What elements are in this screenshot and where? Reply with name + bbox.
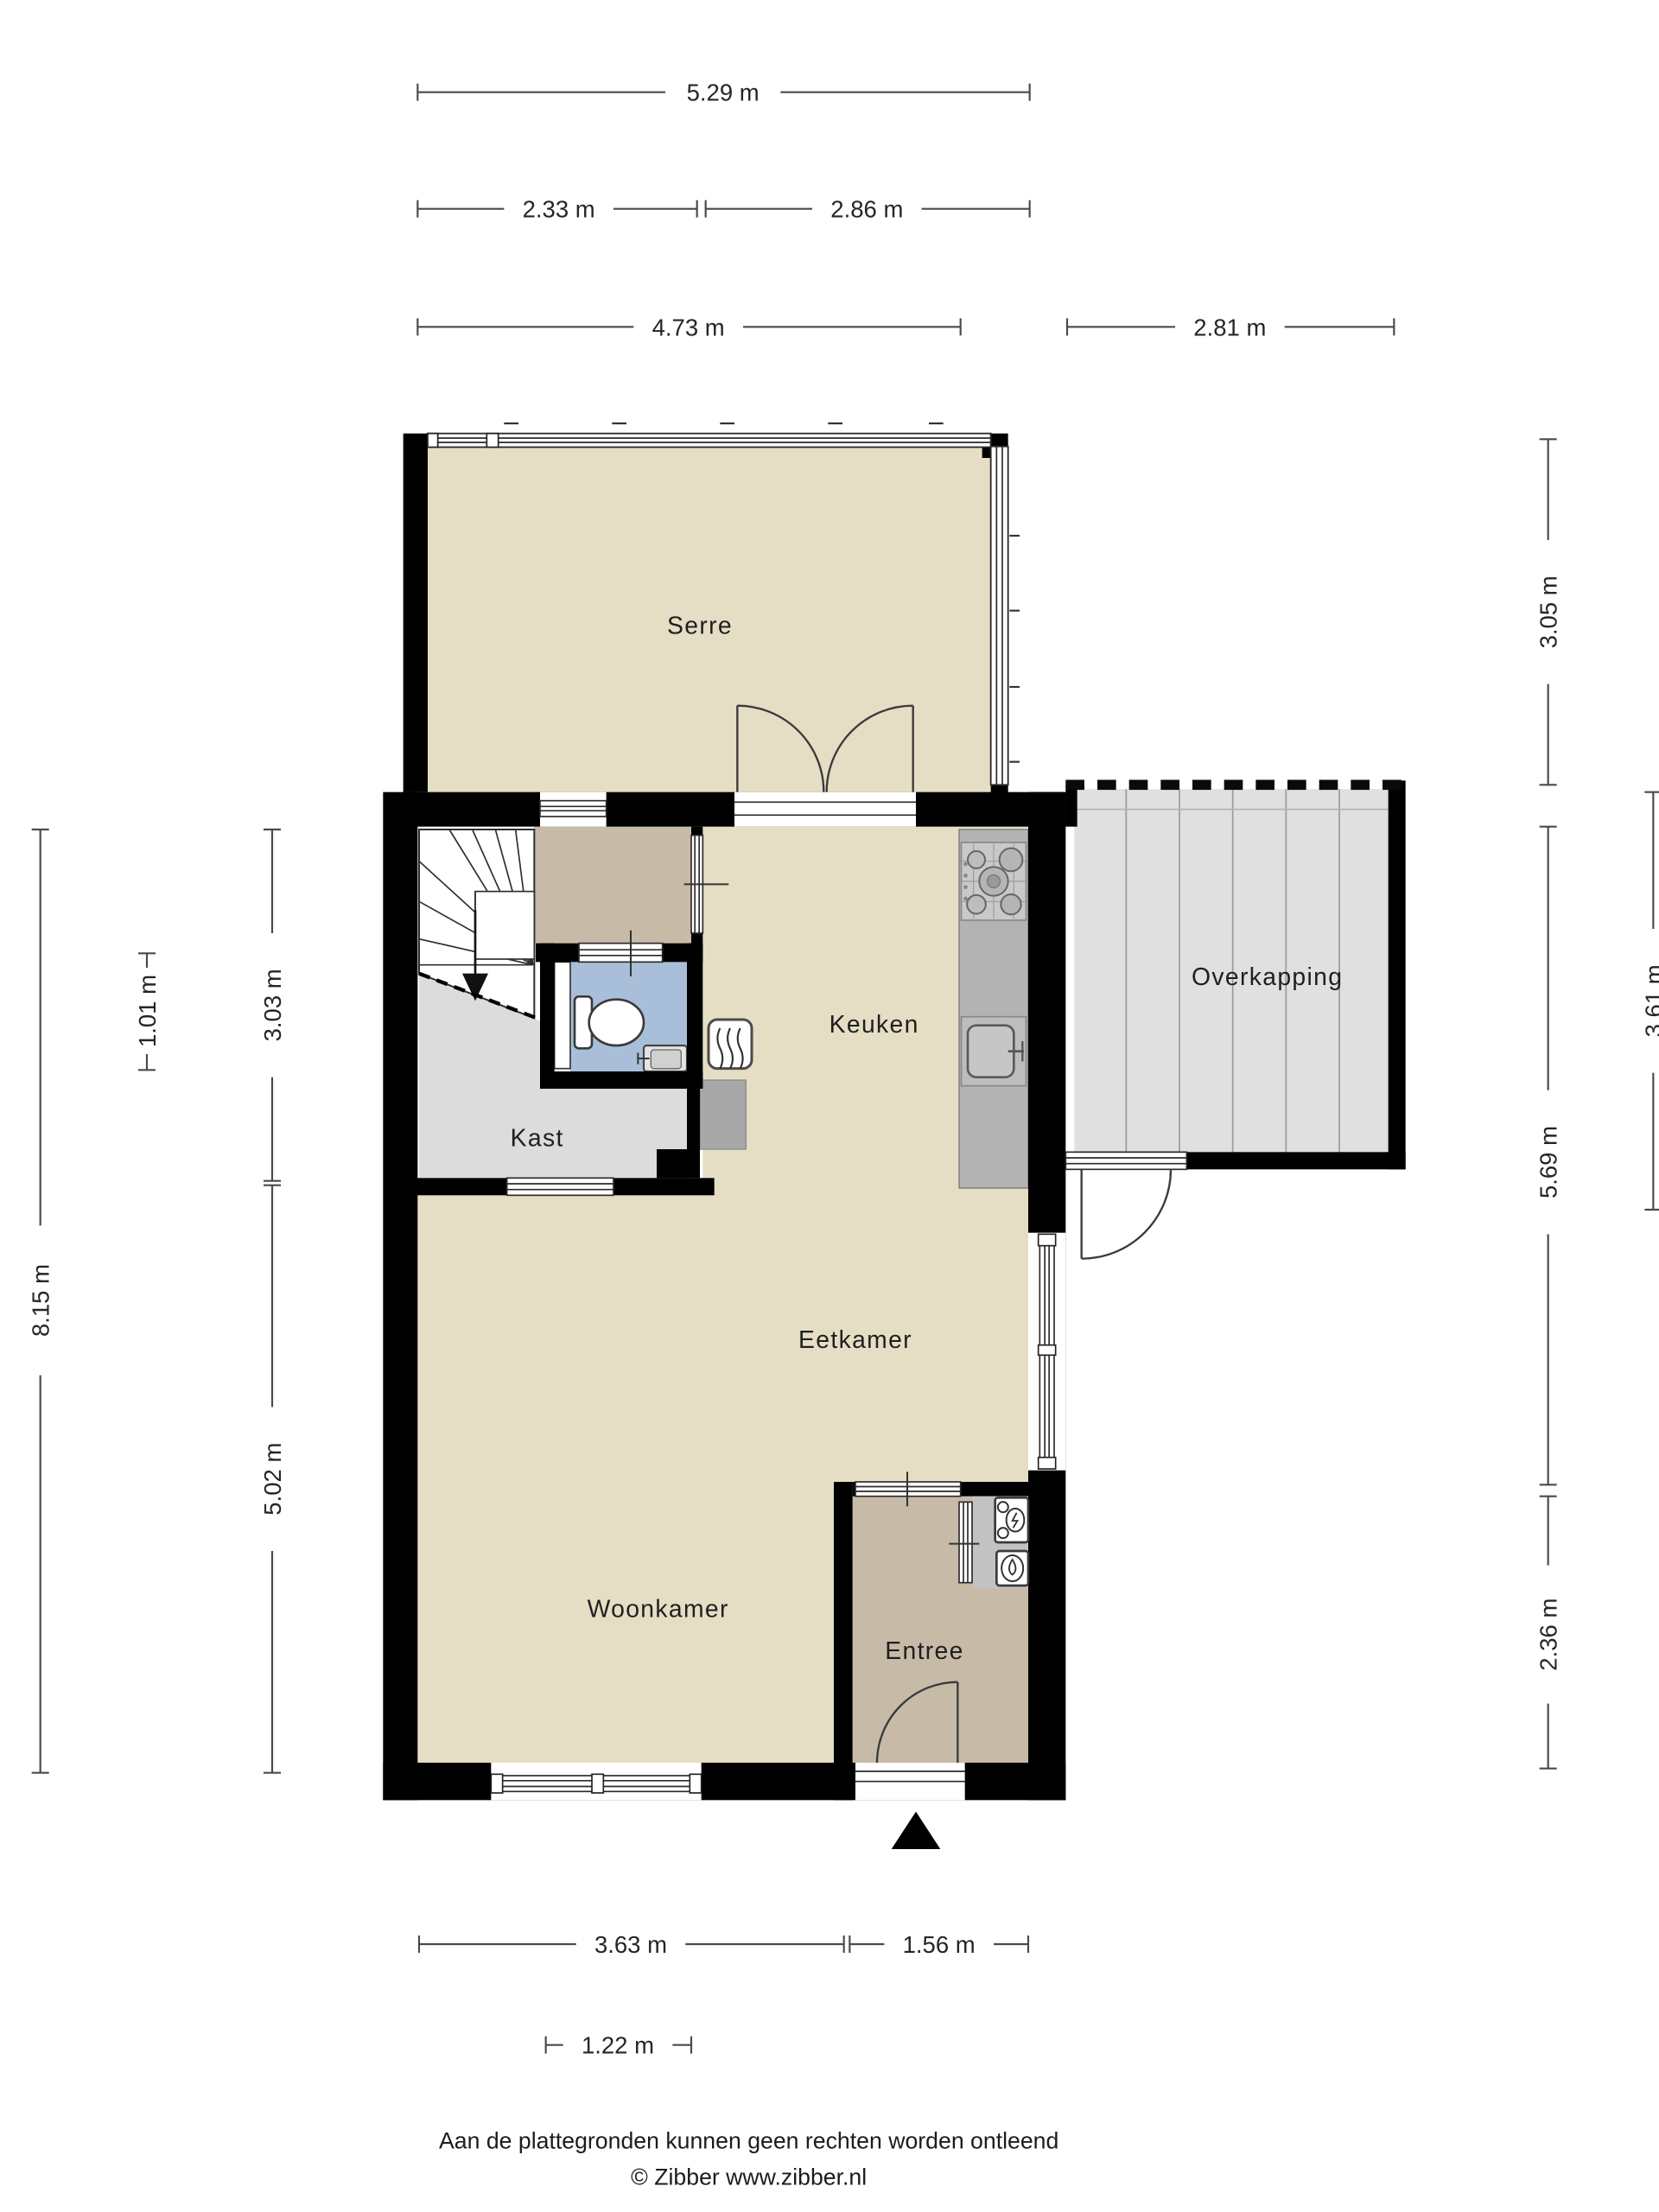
footer-disclaimer: Aan de plattegronden kunnen geen rechten… (439, 2128, 1058, 2154)
radiator-icon (709, 1020, 752, 1069)
kast-opening (507, 1178, 613, 1195)
keuken-label: Keuken (829, 1011, 919, 1039)
dim-2-36: 2.36 m (1535, 1497, 1562, 1769)
kitchen-counter (959, 829, 1028, 1188)
dim-2-33-label: 2.33 m (523, 196, 595, 223)
dim-4-73: 4.73 m (417, 314, 960, 340)
stair-flight (475, 892, 534, 959)
dim-5-29: 5.29 m (417, 79, 1029, 106)
floor-plan-canvas: Serre Keuken Overkapping Kast Eetkamer W… (0, 0, 1659, 2212)
dim-1-22: 1.22 m (546, 2032, 691, 2059)
overkapping-bottom-wall (1186, 1152, 1405, 1169)
hand-basin-icon (638, 1046, 687, 1071)
overkapping-corner-block (1065, 785, 1077, 826)
water-meter-icon (996, 1551, 1028, 1586)
entree-left-wall (834, 1482, 853, 1800)
eetkamer-label: Eetkamer (798, 1326, 912, 1354)
dim-5-69: 5.69 m (1535, 827, 1562, 1485)
dim-3-63-label: 3.63 m (594, 1931, 667, 1958)
toilet-bottom-wall (540, 1071, 702, 1089)
kast-right-wall (687, 1089, 700, 1149)
north-arrow-icon (892, 1812, 941, 1849)
dim-3-03: 3.03 m (259, 829, 286, 1181)
serre-right-window-ticks (1009, 536, 1020, 762)
dim-2-81: 2.81 m (1067, 314, 1394, 340)
overkapping-door (1065, 1152, 1186, 1258)
dim-4-73-label: 4.73 m (652, 314, 725, 340)
toilet-room (555, 962, 687, 1071)
serre-left-wall (404, 434, 428, 792)
hal-door-jamb-top (691, 827, 702, 836)
appliance-block (700, 1080, 746, 1149)
meter-cupboard-door (959, 1502, 972, 1582)
entree-label: Entree (885, 1637, 963, 1665)
dim-2-36-label: 2.36 m (1535, 1599, 1562, 1671)
electricity-meter-icon (995, 1497, 1028, 1542)
toilet-door-leaf (555, 962, 570, 1068)
kast-label: Kast (511, 1125, 564, 1153)
toilet-icon (575, 996, 644, 1048)
house-left-wall (383, 792, 417, 1801)
dim-8-15: 8.15 m (28, 829, 54, 1773)
dim-8-15-label: 8.15 m (28, 1264, 54, 1337)
dim-3-63: 3.63 m (419, 1931, 844, 1958)
eetkamer-window (1028, 1233, 1065, 1471)
toilet-left-wall (540, 944, 555, 1089)
dim-5-02: 5.02 m (259, 1185, 286, 1773)
floor-plan-page: Serre Keuken Overkapping Kast Eetkamer W… (0, 0, 1659, 2212)
meter-cupboard (949, 1497, 1028, 1589)
dim-2-86: 2.86 m (706, 196, 1030, 223)
dim-1-01-label: 1.01 m (134, 975, 161, 1047)
serre-right-window (991, 447, 1020, 785)
toilet-right-wall (687, 944, 702, 1089)
dim-3-61-label: 3.61 m (1640, 964, 1659, 1037)
dim-1-56: 1.56 m (849, 1931, 1028, 1958)
dim-1-22-label: 1.22 m (582, 2032, 654, 2059)
overkapping-label: Overkapping (1192, 963, 1343, 991)
stove-icon (962, 842, 1027, 920)
dim-3-03-label: 3.03 m (259, 969, 286, 1041)
dim-5-29-label: 5.29 m (687, 79, 760, 106)
woonkamer-label: Woonkamer (588, 1596, 729, 1624)
dim-3-05: 3.05 m (1535, 439, 1562, 785)
footer-credit: © Zibber www.zibber.nl (631, 2164, 867, 2190)
dim-5-02-label: 5.02 m (259, 1443, 286, 1516)
kast-corner-block (657, 1149, 700, 1178)
dim-3-61: 3.61 m (1640, 792, 1659, 1210)
dim-2-86-label: 2.86 m (830, 196, 903, 223)
dim-2-33: 2.33 m (417, 196, 696, 223)
dim-1-01: 1.01 m (134, 953, 161, 1070)
dim-3-05-label: 3.05 m (1535, 575, 1562, 648)
dim-2-81-label: 2.81 m (1193, 314, 1266, 340)
overkapping-door-arc (1082, 1169, 1171, 1258)
top-wall-window (540, 792, 607, 827)
serre-top-window (428, 423, 991, 448)
serre-label: Serre (667, 612, 733, 639)
dim-5-69-label: 5.69 m (1535, 1126, 1562, 1198)
dim-1-56-label: 1.56 m (903, 1931, 976, 1958)
floors (417, 445, 1388, 1763)
hal-floor (534, 827, 691, 944)
sink-icon (962, 1017, 1027, 1086)
overkapping-right-wall (1389, 780, 1406, 1169)
woonkamer-window (491, 1763, 701, 1800)
footer: Aan de plattegronden kunnen geen rechten… (439, 2128, 1058, 2190)
